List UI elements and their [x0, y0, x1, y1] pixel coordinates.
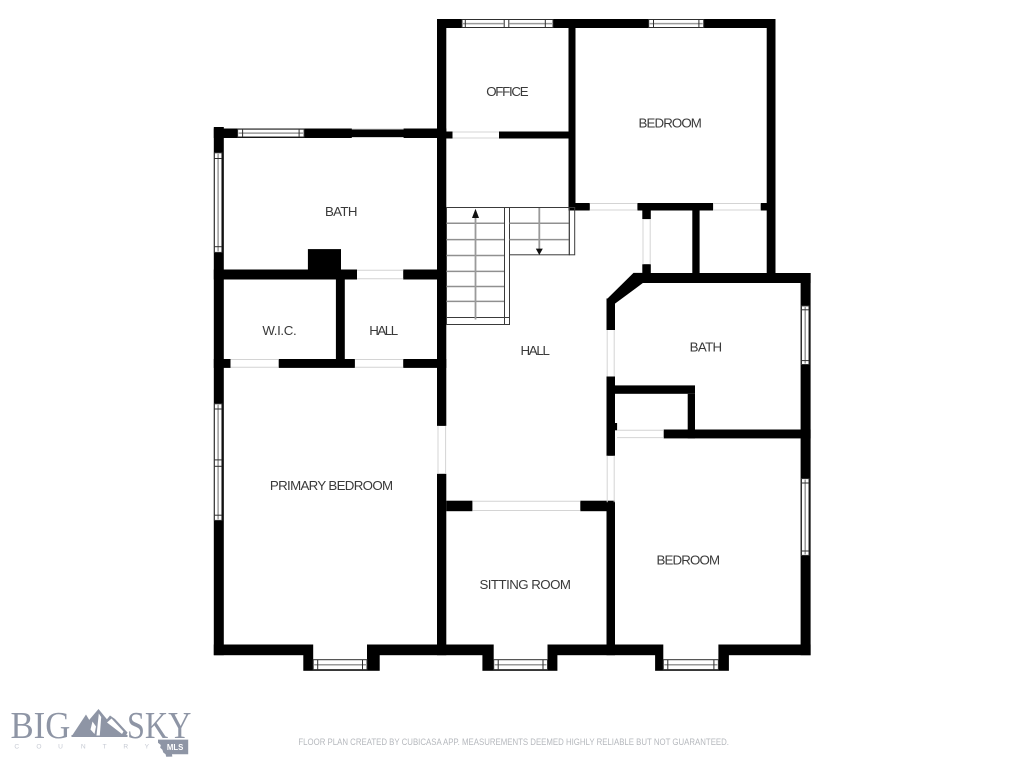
svg-text:SITTING ROOM: SITTING ROOM [479, 577, 571, 592]
svg-text:HALL: HALL [369, 323, 398, 338]
svg-text:HALL: HALL [520, 343, 550, 358]
svg-text:BATH: BATH [325, 204, 358, 219]
svg-text:C: C [14, 743, 19, 750]
svg-text:Y: Y [145, 743, 150, 750]
svg-text:OFFICE: OFFICE [486, 84, 529, 99]
svg-text:U: U [58, 743, 63, 750]
svg-text:MLS: MLS [167, 742, 184, 752]
svg-text:T: T [103, 743, 107, 750]
svg-text:N: N [81, 743, 86, 750]
svg-text:W.I.C.: W.I.C. [262, 323, 296, 338]
svg-text:R: R [123, 743, 128, 750]
svg-text:FLOOR PLAN CREATED BY CUBICASA: FLOOR PLAN CREATED BY CUBICASA APP. MEAS… [298, 737, 729, 748]
svg-text:BEDROOM: BEDROOM [639, 116, 702, 131]
svg-text:PRIMARY BEDROOM: PRIMARY BEDROOM [270, 478, 393, 493]
svg-text:BIG: BIG [11, 705, 71, 747]
svg-text:O: O [36, 743, 41, 750]
svg-text:BATH: BATH [690, 340, 723, 355]
svg-text:BEDROOM: BEDROOM [657, 553, 721, 568]
